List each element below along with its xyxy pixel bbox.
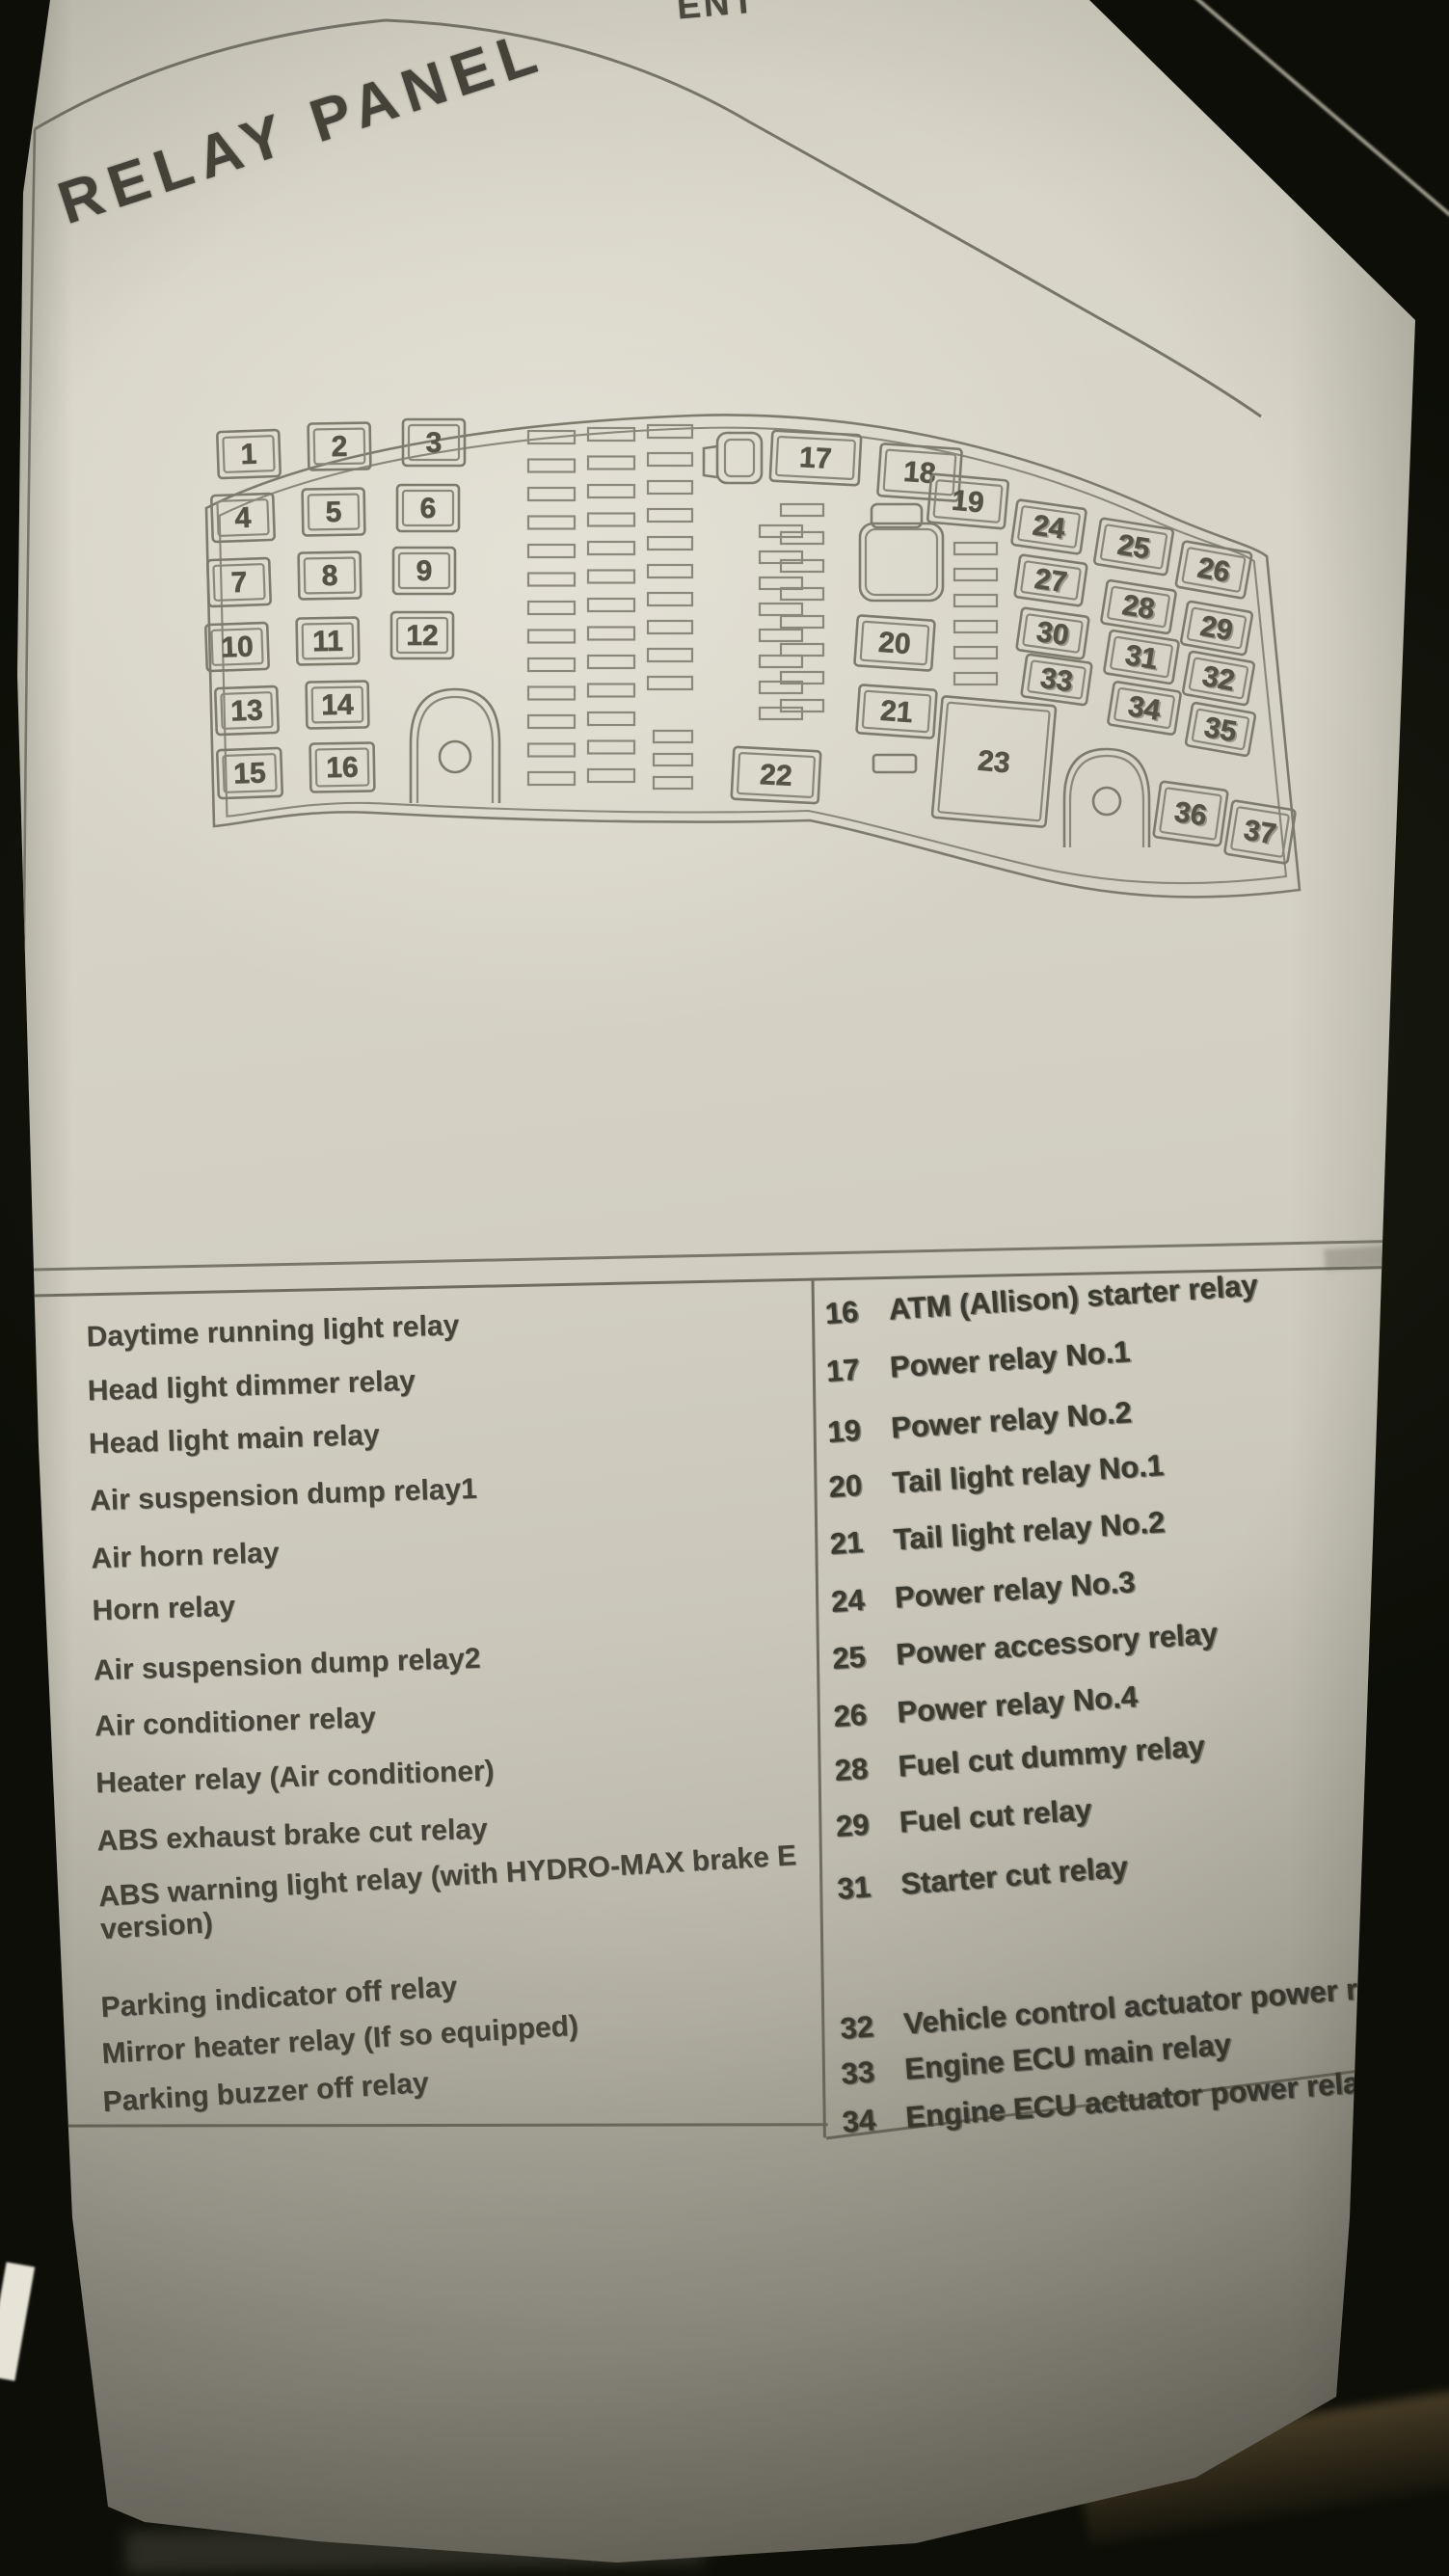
manual-page: RELAY PANEL ENT E04-6 [0, 0, 1449, 2576]
relay-box-number: 1 [240, 439, 257, 471]
fuse-slot [954, 621, 997, 632]
relay-box: 2727 [1014, 554, 1087, 605]
relay-box: 2 [309, 422, 371, 470]
faint-figure-code-smudge [1324, 1243, 1433, 1271]
legend-number: 28 [834, 1753, 870, 1787]
page-corner-code: E04-6 [1326, 167, 1392, 239]
relay-box: 5 [303, 488, 365, 535]
fuse-slot [528, 574, 575, 586]
fuse-slot [654, 754, 692, 765]
fuse-slot [781, 644, 823, 656]
fuse-slot [588, 769, 634, 782]
legend-number: 9 [22, 1769, 38, 1802]
legend-number: 21 [829, 1526, 865, 1561]
blank-slot [873, 755, 916, 772]
fuse-slot [528, 744, 575, 757]
relay-box: 3434 [1108, 682, 1181, 735]
relay-box: 17 [770, 431, 862, 486]
relay-box-number: 14 [321, 689, 354, 722]
fuse-slot [954, 543, 997, 554]
clip-shape [704, 433, 762, 483]
relay-box: 3737 [1224, 800, 1296, 864]
relay-box-number: 16 [326, 752, 359, 785]
legend-number: 31 [836, 1870, 872, 1906]
relay-box: 2626 [1175, 541, 1251, 599]
relay-box-number: 3 [426, 427, 443, 459]
fuse-slot [954, 569, 997, 580]
fuse-slot [648, 621, 692, 633]
relay-box-number: 28 [1120, 589, 1157, 626]
legend-number: 29 [835, 1809, 871, 1843]
relay-box: 19 [927, 474, 1008, 529]
relay-box: 3 [403, 419, 465, 466]
relay-box-number: 29 [1198, 610, 1236, 647]
legend-number: 32 [839, 2010, 874, 2046]
legend-number: 33 [840, 2055, 875, 2091]
table-bottom-border-left [34, 2123, 828, 2127]
legend-label: Tail light relay No.2 [893, 1506, 1167, 1557]
blank-square [860, 504, 943, 601]
legend-label: ABS exhaust brake cut relay [96, 1813, 488, 1859]
legend-label: Vehicle control actuator power relay [902, 1969, 1416, 2041]
legend-label: Head light dimmer relay [87, 1365, 416, 1409]
table-left-border [18, 1295, 38, 2122]
relay-box-number: 5 [325, 496, 341, 528]
fuse-slot [760, 656, 802, 667]
relay-box-number: 26 [1195, 551, 1233, 588]
fuse-slot [760, 630, 802, 641]
relay-box: 6 [397, 485, 459, 531]
relay-box-number: 37 [1242, 815, 1278, 851]
under-page-edge [0, 2262, 35, 2380]
legend-label: Parking buzzer off relay [102, 2067, 430, 2119]
legend-label: Power accessory relay [895, 1618, 1219, 1672]
page-title: RELAY PANEL [50, 16, 552, 238]
legend-label: Starter cut relay [899, 1851, 1129, 1901]
relay-box-number: 2 [331, 431, 347, 463]
relay-box-number: 27 [1033, 563, 1069, 599]
relay-box: 9 [393, 548, 455, 594]
fuse-slot [528, 602, 575, 614]
fuse-slot [654, 777, 692, 789]
fuse-slot [654, 731, 692, 742]
legend-number: 19 [826, 1414, 862, 1449]
fuse-slot [528, 460, 575, 472]
fuse-slot [528, 658, 575, 671]
legend-label: Air conditioner relay [94, 1702, 377, 1743]
relay-box-number: 24 [1031, 509, 1067, 545]
relay-box-number: 12 [406, 620, 438, 652]
fuse-slot [648, 593, 692, 605]
relay-box-number: 33 [1038, 662, 1075, 698]
legend-number: 5 [17, 1544, 33, 1577]
cropped-header-text: ENT [675, 0, 758, 28]
relay-box-number: 15 [233, 757, 267, 790]
relay-box: 2525 [1094, 518, 1174, 575]
fuse-slot [588, 542, 634, 554]
fuse-slot [588, 457, 634, 470]
legend-label: Air suspension dump relay1 [90, 1473, 478, 1518]
legend-number: 16 [824, 1296, 860, 1330]
fuse-slot [588, 684, 634, 697]
legend-number: 8 [21, 1712, 37, 1745]
relay-box-number: 20 [877, 627, 912, 660]
right-dome [1064, 749, 1149, 847]
fuse-slot [528, 545, 575, 557]
relay-box: 3232 [1183, 651, 1255, 705]
relay-box: 2828 [1101, 580, 1176, 634]
legend-label: Power relay No.2 [890, 1396, 1133, 1444]
legend-label: Fuel cut relay [899, 1793, 1093, 1838]
legend-label: Power relay No.1 [889, 1335, 1132, 1383]
legend-number: 11 [24, 1884, 52, 1919]
table-column-divider [811, 1278, 825, 2138]
relay-box: 12 [391, 612, 453, 658]
fuse-slot [588, 599, 634, 611]
legend-label: Power relay No.4 [896, 1680, 1139, 1729]
relay-box: 20 [854, 615, 934, 670]
relay-box: 3636 [1153, 781, 1227, 845]
relay-box: 3030 [1016, 607, 1088, 658]
legend-label: Power relay No.3 [894, 1566, 1137, 1614]
legend-label: Horn relay [92, 1591, 235, 1628]
relay-box: 2424 [1011, 499, 1087, 554]
relay-box-number: 8 [321, 560, 337, 592]
relay-box-number: 25 [1115, 529, 1152, 566]
fuse-slot [528, 517, 575, 529]
legend-number: 13 [27, 1995, 57, 2029]
fuse-slot [648, 565, 692, 577]
fuse-slot [648, 537, 692, 550]
relay-boxes: 1234567891011121314151617181920212223242… [205, 419, 1296, 864]
relay-box-number: 21 [879, 695, 914, 729]
relay-box: 11 [297, 617, 360, 664]
relay-box-number: 7 [230, 567, 248, 600]
relay-box-number: 13 [230, 694, 264, 727]
legend-label: Fuel cut dummy relay [898, 1731, 1206, 1784]
legend-label: Parking indicator off relay [100, 1971, 458, 2025]
relay-panel-diagram: 1234567891011121314151617181920212223242… [193, 400, 1326, 926]
legend-number: 4 [16, 1487, 32, 1519]
fuse-slot [588, 628, 634, 640]
relay-box-number: 36 [1172, 796, 1209, 832]
relay-box-number: 4 [234, 502, 252, 535]
relay-box: 7 [207, 558, 271, 606]
legend-number: 2 [13, 1377, 29, 1409]
legend-table: 1Daytime running light relay2Head light … [10, 1239, 1449, 2183]
relay-box: 22 [732, 747, 821, 804]
legend-number: 24 [830, 1584, 866, 1619]
legend-number: 6 [18, 1597, 34, 1629]
fuse-slot [954, 673, 997, 684]
fuse-slot [588, 656, 634, 668]
relay-box-number: 35 [1202, 711, 1240, 748]
relay-box: 2929 [1181, 601, 1253, 655]
legend-number: 10 [23, 1827, 52, 1861]
legend-label: ATM (Allison) starter relay [888, 1269, 1259, 1326]
relay-box-number: 19 [951, 485, 985, 520]
relay-box: 10 [205, 623, 269, 671]
left-dome [411, 689, 499, 803]
legend-label: Air horn relay [91, 1537, 280, 1575]
fuse-slot [588, 712, 634, 725]
legend-number: 26 [833, 1699, 869, 1733]
fuse-slot [588, 571, 634, 583]
relay-box: 8 [299, 551, 362, 599]
relay-box: 1 [217, 430, 281, 478]
legend-number: 14 [28, 2041, 58, 2076]
fuse-slot [528, 687, 575, 700]
legend-label: Daytime running light relay [86, 1309, 460, 1354]
fuse-slot [528, 488, 575, 500]
relay-box-number: 31 [1123, 639, 1160, 676]
relay-box: 16 [310, 742, 375, 792]
fuse-slot [648, 453, 692, 466]
legend-number: 25 [831, 1641, 867, 1676]
fuse-slot [760, 604, 802, 615]
relay-box-number: 23 [977, 745, 1011, 780]
legend-number: 20 [828, 1469, 864, 1504]
legend-label: Tail light relay No.1 [891, 1449, 1165, 1500]
fuse-slot [588, 514, 634, 526]
relay-box-number: 34 [1126, 690, 1163, 727]
fuse-slot [648, 481, 692, 494]
relay-box-number: 6 [420, 493, 437, 524]
relay-box-number: 11 [312, 626, 343, 658]
table-right-border [1432, 1260, 1445, 2058]
manual-page-photo: RELAY PANEL ENT E04-6 [0, 0, 1449, 2576]
legend-label: Heater relay (Air conditioner) [95, 1755, 495, 1800]
relay-box-number: 32 [1200, 660, 1238, 697]
fuse-slot [588, 741, 634, 754]
fuse-slot [588, 485, 634, 497]
relay-box-number: 30 [1034, 616, 1071, 652]
legend-number: 7 [19, 1656, 35, 1689]
relay-box-number: 22 [759, 759, 792, 792]
relay-box-number: 10 [221, 631, 255, 663]
fuse-slot [954, 647, 997, 658]
fuse-slot [648, 677, 692, 689]
fuse-slot [528, 772, 575, 785]
legend-label: Head light main relay [88, 1419, 380, 1461]
legend-label: Air suspension dump relay2 [93, 1643, 481, 1688]
legend-number: 1 [13, 1323, 28, 1355]
fuse-slot [648, 425, 692, 438]
legend-number: 17 [825, 1354, 861, 1388]
relay-box-number: 17 [798, 442, 832, 475]
relay-box: 23 [932, 696, 1057, 827]
relay-box: 14 [307, 681, 369, 728]
legend-number: 15 [29, 2089, 59, 2124]
relay-box: 3131 [1104, 631, 1179, 684]
relay-box: 3333 [1021, 654, 1091, 705]
relay-box-number: 9 [416, 555, 433, 587]
relay-box: 21 [856, 684, 936, 738]
relay-box: 3535 [1186, 703, 1256, 757]
legend-number: 34 [841, 2104, 876, 2139]
fuse-slot [954, 595, 997, 606]
fuse-slot [648, 509, 692, 522]
fuse-slot [528, 631, 575, 643]
fuse-slot [528, 715, 575, 728]
fuse-slot [781, 504, 823, 516]
fuse-slot [781, 616, 823, 628]
legend-number: 3 [15, 1430, 31, 1462]
table-top-rule [10, 1239, 1442, 1272]
fuse-slot [648, 649, 692, 661]
